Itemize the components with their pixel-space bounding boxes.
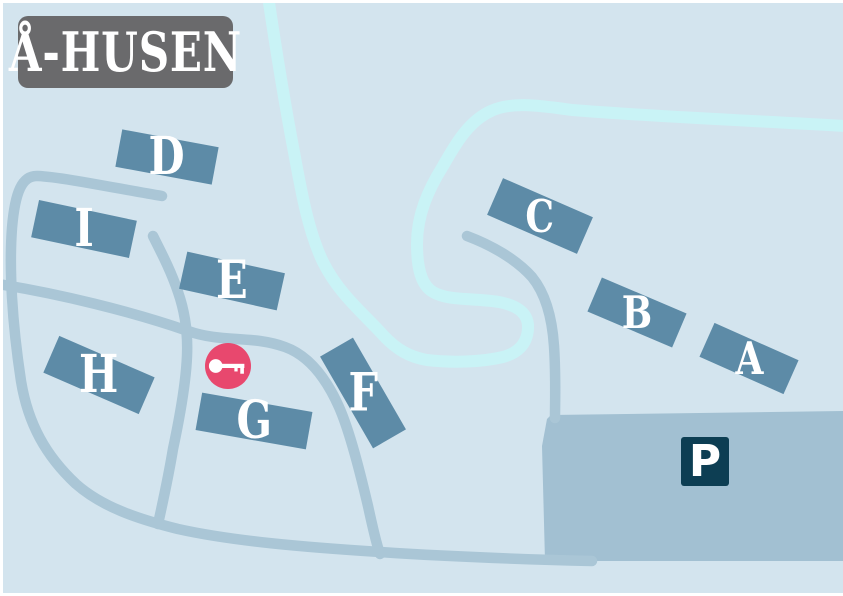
key-marker — [205, 343, 251, 389]
building-i-label: I — [74, 203, 93, 255]
building-e-label: E — [216, 255, 248, 307]
map-title: Å-HUSEN — [9, 20, 242, 84]
building-b-label: B — [622, 290, 652, 335]
map-canvas — [3, 3, 843, 593]
building-d-label: D — [149, 131, 185, 183]
campus-map: D I E H G F C B A — [0, 0, 843, 596]
building-h-label: H — [79, 349, 118, 401]
map-background: D I E H G F C B A — [3, 3, 843, 593]
building-g-label: G — [236, 395, 272, 447]
map-title-box: Å-HUSEN — [18, 16, 233, 88]
building-f-label: F — [348, 367, 378, 419]
river — [268, 3, 843, 362]
building-a-label: A — [735, 336, 763, 381]
parking-sign: P — [681, 437, 729, 486]
parking-sign-label: P — [689, 440, 721, 484]
road-diagonal — [3, 284, 380, 554]
key-icon — [208, 355, 248, 377]
road-to-parking — [467, 236, 555, 418]
building-c-label: C — [526, 193, 555, 238]
